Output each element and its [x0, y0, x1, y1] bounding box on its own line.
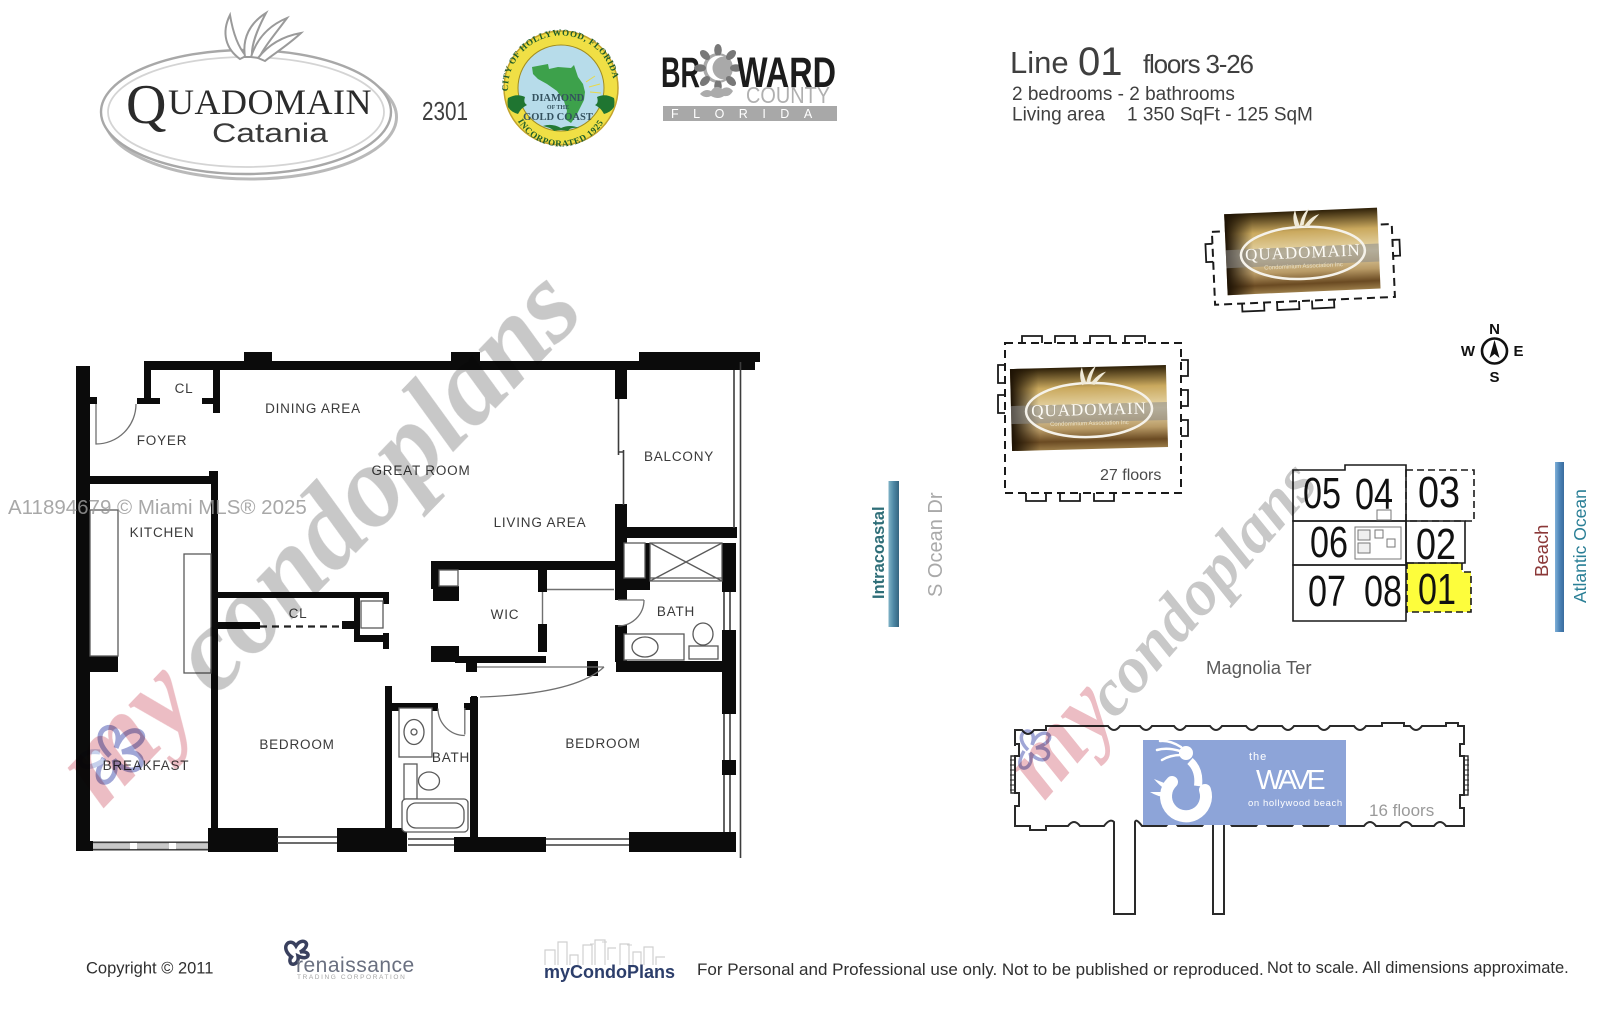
svg-text:on hollywood beach: on hollywood beach	[1248, 798, 1343, 809]
svg-text:S: S	[1489, 369, 1499, 386]
svg-text:FOYER: FOYER	[137, 433, 188, 448]
svg-text:BALCONY: BALCONY	[644, 449, 714, 464]
svg-text:Living area: Living area	[1012, 105, 1105, 126]
svg-text:BR: BR	[661, 49, 700, 97]
svg-text:WIC: WIC	[491, 607, 520, 622]
svg-text:floors 3-26: floors 3-26	[1143, 49, 1254, 79]
svg-text:2 bedrooms - 2 bathrooms: 2 bedrooms - 2 bathrooms	[1012, 84, 1235, 105]
svg-text:UADOMAIN: UADOMAIN	[168, 82, 372, 122]
svg-text:Not to scale. All dimensions: Not to scale. All dimensions approximate…	[1267, 959, 1569, 977]
svg-text:LIVING AREA: LIVING AREA	[494, 515, 587, 530]
svg-text:Intracoastal: Intracoastal	[870, 506, 888, 599]
svg-text:W: W	[1461, 343, 1476, 360]
svg-text:01: 01	[1418, 565, 1456, 614]
svg-text:the: the	[1249, 751, 1267, 763]
svg-text:08: 08	[1364, 567, 1402, 616]
svg-text:02: 02	[1416, 520, 1456, 569]
svg-text:Atlantic Ocean: Atlantic Ocean	[1570, 489, 1590, 603]
svg-text:OF THE: OF THE	[547, 105, 569, 111]
svg-text:DINING AREA: DINING AREA	[265, 401, 361, 416]
svg-text:COUNTY: COUNTY	[746, 82, 830, 108]
svg-text:DIAMOND: DIAMOND	[532, 93, 585, 104]
svg-text:TRADING CORPORATION: TRADING CORPORATION	[297, 974, 406, 981]
svg-text:N: N	[1489, 321, 1500, 338]
svg-text:For Personal and Professional: For Personal and Professional use only. …	[697, 960, 1264, 979]
svg-text:04: 04	[1355, 470, 1393, 519]
svg-text:Beach: Beach	[1531, 525, 1552, 577]
svg-text:FLORIDA: FLORIDA	[671, 107, 827, 121]
svg-text:QUADOMAIN: QUADOMAIN	[1031, 399, 1147, 421]
svg-text:S Ocean Dr: S Ocean Dr	[925, 492, 947, 597]
svg-text:07: 07	[1308, 567, 1346, 616]
svg-text:BATH: BATH	[657, 604, 695, 619]
svg-text:01: 01	[1078, 40, 1123, 84]
svg-text:Line: Line	[1010, 45, 1069, 80]
svg-text:Magnolia Ter: Magnolia Ter	[1206, 657, 1312, 678]
svg-text:03: 03	[1418, 468, 1460, 517]
svg-text:KITCHEN: KITCHEN	[130, 525, 195, 540]
svg-text:CL: CL	[175, 381, 194, 396]
svg-text:E: E	[1513, 343, 1523, 360]
svg-text:myCondoPlans: myCondoPlans	[544, 962, 675, 982]
svg-text:Catania: Catania	[212, 118, 329, 148]
svg-text:16 floors: 16 floors	[1369, 801, 1434, 820]
svg-text:BEDROOM: BEDROOM	[565, 736, 640, 751]
svg-text:1 350 SqFt - 125 SqM: 1 350 SqFt - 125 SqM	[1127, 105, 1313, 126]
svg-text:27 floors: 27 floors	[1100, 467, 1161, 484]
svg-text:BEDROOM: BEDROOM	[259, 737, 334, 752]
svg-text:Copyright © 2011: Copyright © 2011	[86, 960, 213, 978]
svg-text:2301: 2301	[422, 96, 468, 126]
svg-text:06: 06	[1310, 518, 1348, 567]
svg-text:Q: Q	[126, 74, 166, 136]
svg-text:BATH: BATH	[432, 750, 470, 765]
svg-text:GOLD COAST: GOLD COAST	[523, 112, 593, 123]
svg-text:WAVE: WAVE	[1256, 764, 1331, 795]
